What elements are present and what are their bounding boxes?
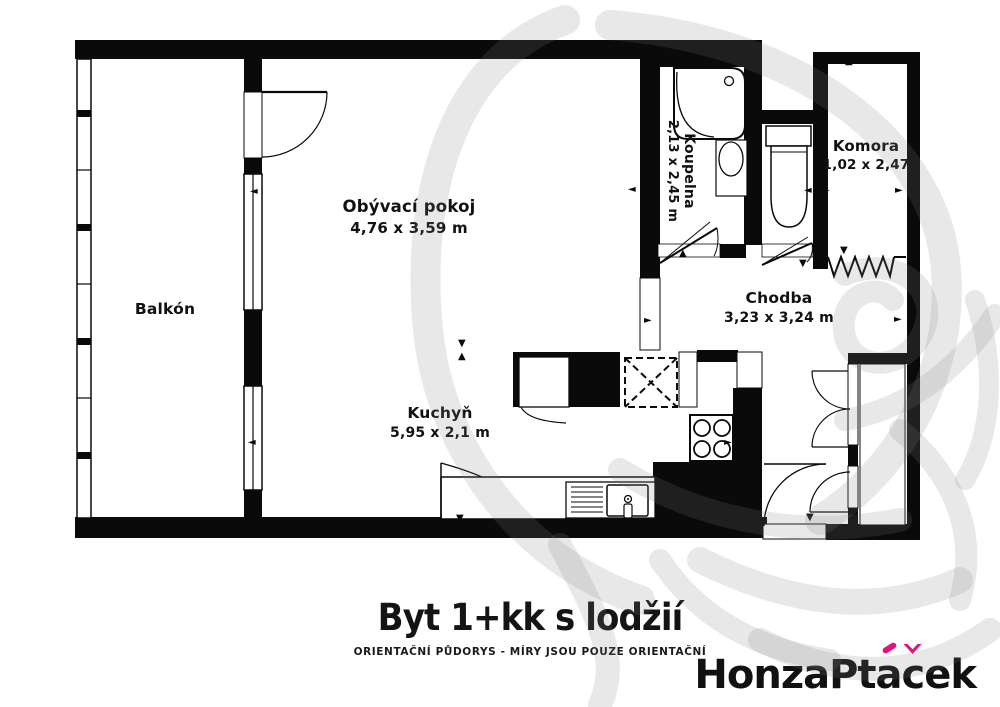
marker-up-icon: ▲ xyxy=(845,57,853,67)
logo-letter-c: c xyxy=(902,652,925,698)
marker-up-icon: ▲ xyxy=(461,48,469,58)
ventilation-shaft xyxy=(625,358,677,407)
room-label-obyvaci-pokoj: Obývací pokoj 4,76 x 3,59 m xyxy=(309,197,509,237)
marker-right-icon: ► xyxy=(724,438,732,448)
marker-left-icon: ◄ xyxy=(250,187,258,197)
logo-letter-a-base: a xyxy=(876,652,902,698)
marker-left-icon: ◄ xyxy=(248,438,256,448)
zigzag-radiator xyxy=(816,257,906,276)
agency-logo: HonzaPtacek xyxy=(694,652,976,698)
entrance-door xyxy=(763,464,826,539)
logo-text: HonzaPt xyxy=(694,652,875,698)
marker-up-icon: ▲ xyxy=(706,57,714,67)
washbasin xyxy=(716,140,747,196)
room-label-koupelna: Koupelna 2,13 x 2,45 m xyxy=(665,101,697,241)
room-label-komora: Komora 1,02 x 2,47 xyxy=(816,137,916,173)
marker-down-icon: ▼ xyxy=(799,259,807,269)
closet-door xyxy=(810,472,850,512)
room-dims: 3,23 x 3,24 m xyxy=(679,310,879,326)
balcony-door xyxy=(244,92,327,158)
toilet xyxy=(766,126,811,227)
room-dims: 1,02 x 2,47 xyxy=(816,157,916,173)
sink xyxy=(566,482,655,518)
logo-letter-a: a xyxy=(876,652,902,698)
marker-up-icon: ▲ xyxy=(458,352,466,362)
room-name: Obývací pokoj xyxy=(309,197,509,216)
room-name: Koupelna xyxy=(681,101,697,241)
marker-right-icon: ► xyxy=(822,186,830,196)
room-name: Kuchyň xyxy=(340,404,540,422)
room-label-chodba: Chodba 3,23 x 3,24 m xyxy=(679,289,879,326)
room-name: Chodba xyxy=(679,289,879,307)
balcony-railing xyxy=(77,59,91,518)
room-dims: 4,76 x 3,59 m xyxy=(309,219,509,237)
marker-left-icon: ◄ xyxy=(804,186,812,196)
room-label-kuchyn: Kuchyň 5,95 x 2,1 m xyxy=(340,404,540,441)
wardrobe-doors xyxy=(812,364,905,525)
room-dims: 5,95 x 2,1 m xyxy=(340,425,540,441)
marker-right-icon: ► xyxy=(644,185,652,195)
room-name: Komora xyxy=(816,137,916,155)
marker-down-icon: ▼ xyxy=(806,513,814,523)
marker-down-icon: ▼ xyxy=(456,514,464,524)
room-name: Balkón xyxy=(85,300,245,318)
marker-right-icon: ► xyxy=(894,315,902,325)
room-label-balkon: Balkón xyxy=(85,300,245,318)
marker-down-icon: ▼ xyxy=(458,339,466,349)
title-block: Byt 1+kk s lodžií ORIENTAČNÍ PŮDORYS - M… xyxy=(230,596,830,658)
room-dims: 2,13 x 2,45 m xyxy=(665,101,680,241)
logo-letter-c-base: c xyxy=(902,652,925,698)
marker-up-icon: ▲ xyxy=(679,249,687,259)
marker-right-icon: ► xyxy=(895,186,903,196)
marker-down-icon: ▼ xyxy=(840,246,848,256)
page-title: Byt 1+kk s lodžií xyxy=(254,596,806,639)
floorplan-image: Balkón Obývací pokoj 4,76 x 3,59 m Koupe… xyxy=(0,0,1000,707)
marker-right-icon: ► xyxy=(644,316,652,326)
marker-left-icon: ◄ xyxy=(628,185,636,195)
logo-text: ek xyxy=(924,652,976,698)
